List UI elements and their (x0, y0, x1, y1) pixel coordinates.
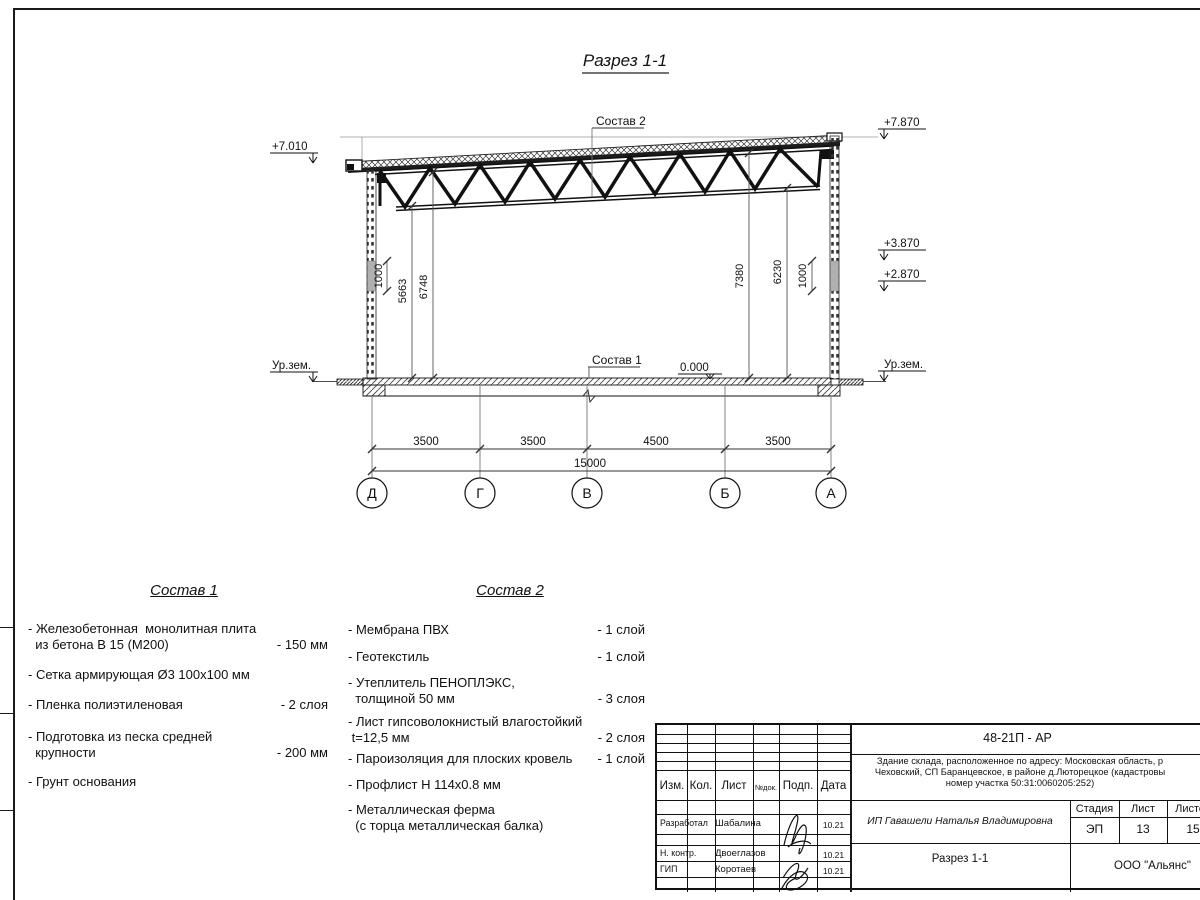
item-name: - Грунт основания (28, 774, 322, 790)
elevation-ground-right: Ур.зем. (878, 359, 926, 381)
svg-text:+2.870: +2.870 (884, 269, 920, 281)
svg-text:+7.870: +7.870 (884, 117, 920, 129)
truss-bearing-left (377, 173, 386, 183)
svg-text:3500: 3500 (413, 436, 439, 448)
item-value: - 1 слой (597, 649, 645, 665)
item-value: - 150 мм (277, 637, 328, 653)
stage-value: ЭП (1070, 822, 1119, 836)
svg-text:3500: 3500 (765, 436, 791, 448)
item-value: - 1 слой (597, 751, 645, 767)
item-name: - Пароизоляция для плоских кровель (348, 751, 591, 767)
list-item: - Сетка армирующая Ø3 100х100 мм (28, 667, 328, 683)
row-date: 10.21 (817, 820, 850, 830)
client-name: ИП Гавашели Наталья Владимировна (854, 816, 1066, 827)
svg-text:6748: 6748 (418, 275, 430, 299)
svg-text:1000: 1000 (373, 264, 385, 288)
svg-text:А: А (826, 485, 836, 501)
sheets-label: Листов (1167, 803, 1200, 815)
svg-text:Б: Б (720, 485, 729, 501)
svg-text:Ур.зем.: Ур.зем. (884, 359, 923, 371)
row-role: Разработал (660, 818, 708, 828)
row-name: Двоеглазов (715, 848, 753, 859)
item-name: - Металлическая ферма (с торца металличе… (348, 802, 639, 833)
svg-text:5663: 5663 (397, 279, 409, 303)
total-span-label: 15000 (574, 458, 606, 470)
item-name: - Утеплитель ПЕНОПЛЭКС, толщиной 50 мм (348, 675, 592, 706)
height-dimension-labels: 1000 5663 6748 7380 6230 1000 (373, 260, 809, 303)
floor-slab (363, 378, 831, 385)
fold-mark (0, 713, 13, 714)
sostav1-title: Состав 1 (34, 582, 334, 599)
list-item: - Подготовка из песка средней крупности … (28, 729, 328, 760)
svg-text:6230: 6230 (772, 260, 784, 284)
footing-right (818, 385, 840, 396)
col-list: Лист (715, 780, 753, 792)
title-block: Изм. Кол. Лист №док. Подп. Дата Разработ… (655, 723, 1200, 890)
svg-text:0.000: 0.000 (680, 362, 709, 374)
item-value: - 200 мм (277, 745, 328, 761)
stage-label: Стадия (1070, 803, 1119, 815)
list-item: - Пленка полиэтиленовая - 2 слоя (28, 697, 328, 713)
sostav2-title: Состав 2 (360, 582, 660, 599)
section-drawing: Разрез 1-1 (0, 0, 1200, 560)
item-value: - 2 слоя (281, 697, 328, 713)
list-item: - Пароизоляция для плоских кровель - 1 с… (348, 751, 645, 767)
list-item: - Утеплитель ПЕНОПЛЭКС, толщиной 50 мм -… (348, 675, 645, 706)
svg-text:Ур.зем.: Ур.зем. (272, 360, 311, 372)
fold-mark (0, 810, 13, 811)
svg-text:7380: 7380 (734, 264, 746, 288)
item-name: - Железобетонная монолитная плита из бет… (28, 621, 271, 652)
item-name: - Мембрана ПВХ (348, 622, 591, 638)
signature-scribbles (779, 800, 817, 892)
section-title: Разрез 1-1 (850, 853, 1070, 865)
fold-mark (0, 627, 13, 628)
col-izm: Изм. (657, 780, 687, 792)
zero-level-mark: 0.000 (678, 362, 722, 379)
footing-left (363, 385, 385, 396)
svg-text:4500: 4500 (643, 436, 669, 448)
walls (367, 136, 839, 379)
sheet-number: 13 (1119, 822, 1167, 836)
right-wall (830, 136, 839, 379)
item-value: - 1 слой (597, 622, 645, 638)
list-item: - Металлическая ферма (с торца металличе… (348, 802, 645, 833)
col-data: Дата (817, 780, 850, 792)
row-date: 10.21 (817, 850, 850, 860)
list-item: - Мембрана ПВХ - 1 слой (348, 622, 645, 638)
item-name: - Сетка армирующая Ø3 100х100 мм (28, 667, 322, 683)
svg-text:+3.870: +3.870 (884, 238, 920, 250)
leader-sostav1: Состав 1 (588, 353, 642, 378)
svg-text:1000: 1000 (797, 264, 809, 288)
elevation-left-top: +7.010 (270, 141, 318, 163)
item-name: - Профлист Н 114х0.8 мм (348, 777, 639, 793)
item-value: - 2 слоя (598, 730, 645, 746)
col-podp: Подп. (779, 780, 817, 792)
page-title: Разрез 1-1 (583, 51, 667, 70)
span-dimension-labels: 3500 3500 4500 3500 15000 (413, 436, 791, 470)
item-name: - Геотекстиль (348, 649, 591, 665)
svg-text:+7.010: +7.010 (272, 141, 308, 153)
sheet-label: Лист (1119, 803, 1167, 815)
svg-text:Состав 1: Состав 1 (592, 353, 642, 367)
row-date: 10.21 (817, 866, 850, 876)
svg-text:Состав 2: Состав 2 (596, 114, 646, 128)
col-kol: Кол. (687, 780, 715, 792)
project-description-line3: номер участка 50:31:0060205:252) (850, 778, 1190, 788)
list-item: - Железобетонная монолитная плита из бет… (28, 621, 328, 652)
svg-text:В: В (582, 485, 591, 501)
drawing-sheet: { "sheet": { "drawing_title": "Разрез 1-… (0, 0, 1200, 900)
elevation-right-lower: +2.870 (878, 269, 926, 291)
sheets-total: 15 (1167, 822, 1200, 836)
svg-text:3500: 3500 (520, 436, 546, 448)
row-name: Шабалина (715, 818, 753, 829)
item-value: - 3 слоя (598, 691, 645, 707)
item-name: - Подготовка из песка средней крупности (28, 729, 271, 760)
item-name: - Пленка полиэтиленовая (28, 697, 275, 713)
list-item: - Геотекстиль - 1 слой (348, 649, 645, 665)
company-name: ООО "Альянс" (1070, 860, 1200, 872)
elevation-right-upper: +3.870 (878, 238, 926, 260)
elevation-right-top: +7.870 (878, 117, 926, 139)
axis-bubbles: Д Г В Б А (357, 478, 846, 508)
row-role: ГИП (660, 864, 677, 874)
project-description-line2: Чеховский, СП Баранцевское, в районе д.Л… (850, 767, 1190, 777)
row-name: Коротаев (715, 864, 753, 875)
list-item: - Грунт основания (28, 774, 328, 790)
col-ndok: №док. (753, 783, 779, 792)
elevation-ground-left: Ур.зем. (270, 360, 318, 382)
list-item: - Профлист Н 114х0.8 мм (348, 777, 645, 793)
list-item: - Лист гипсоволокнистый влагостойкий t=1… (348, 714, 645, 745)
row-role: Н. контр. (660, 848, 696, 858)
document-code: 48-21П - АР (850, 731, 1185, 745)
right-wall-band (831, 261, 839, 291)
svg-text:Д: Д (367, 485, 377, 501)
svg-text:Г: Г (476, 485, 484, 501)
floor-and-ground (314, 378, 886, 402)
item-name: - Лист гипсоволокнистый влагостойкий t=1… (348, 714, 592, 745)
project-description-line1: Здание склада, расположенное по адресу: … (850, 756, 1190, 766)
